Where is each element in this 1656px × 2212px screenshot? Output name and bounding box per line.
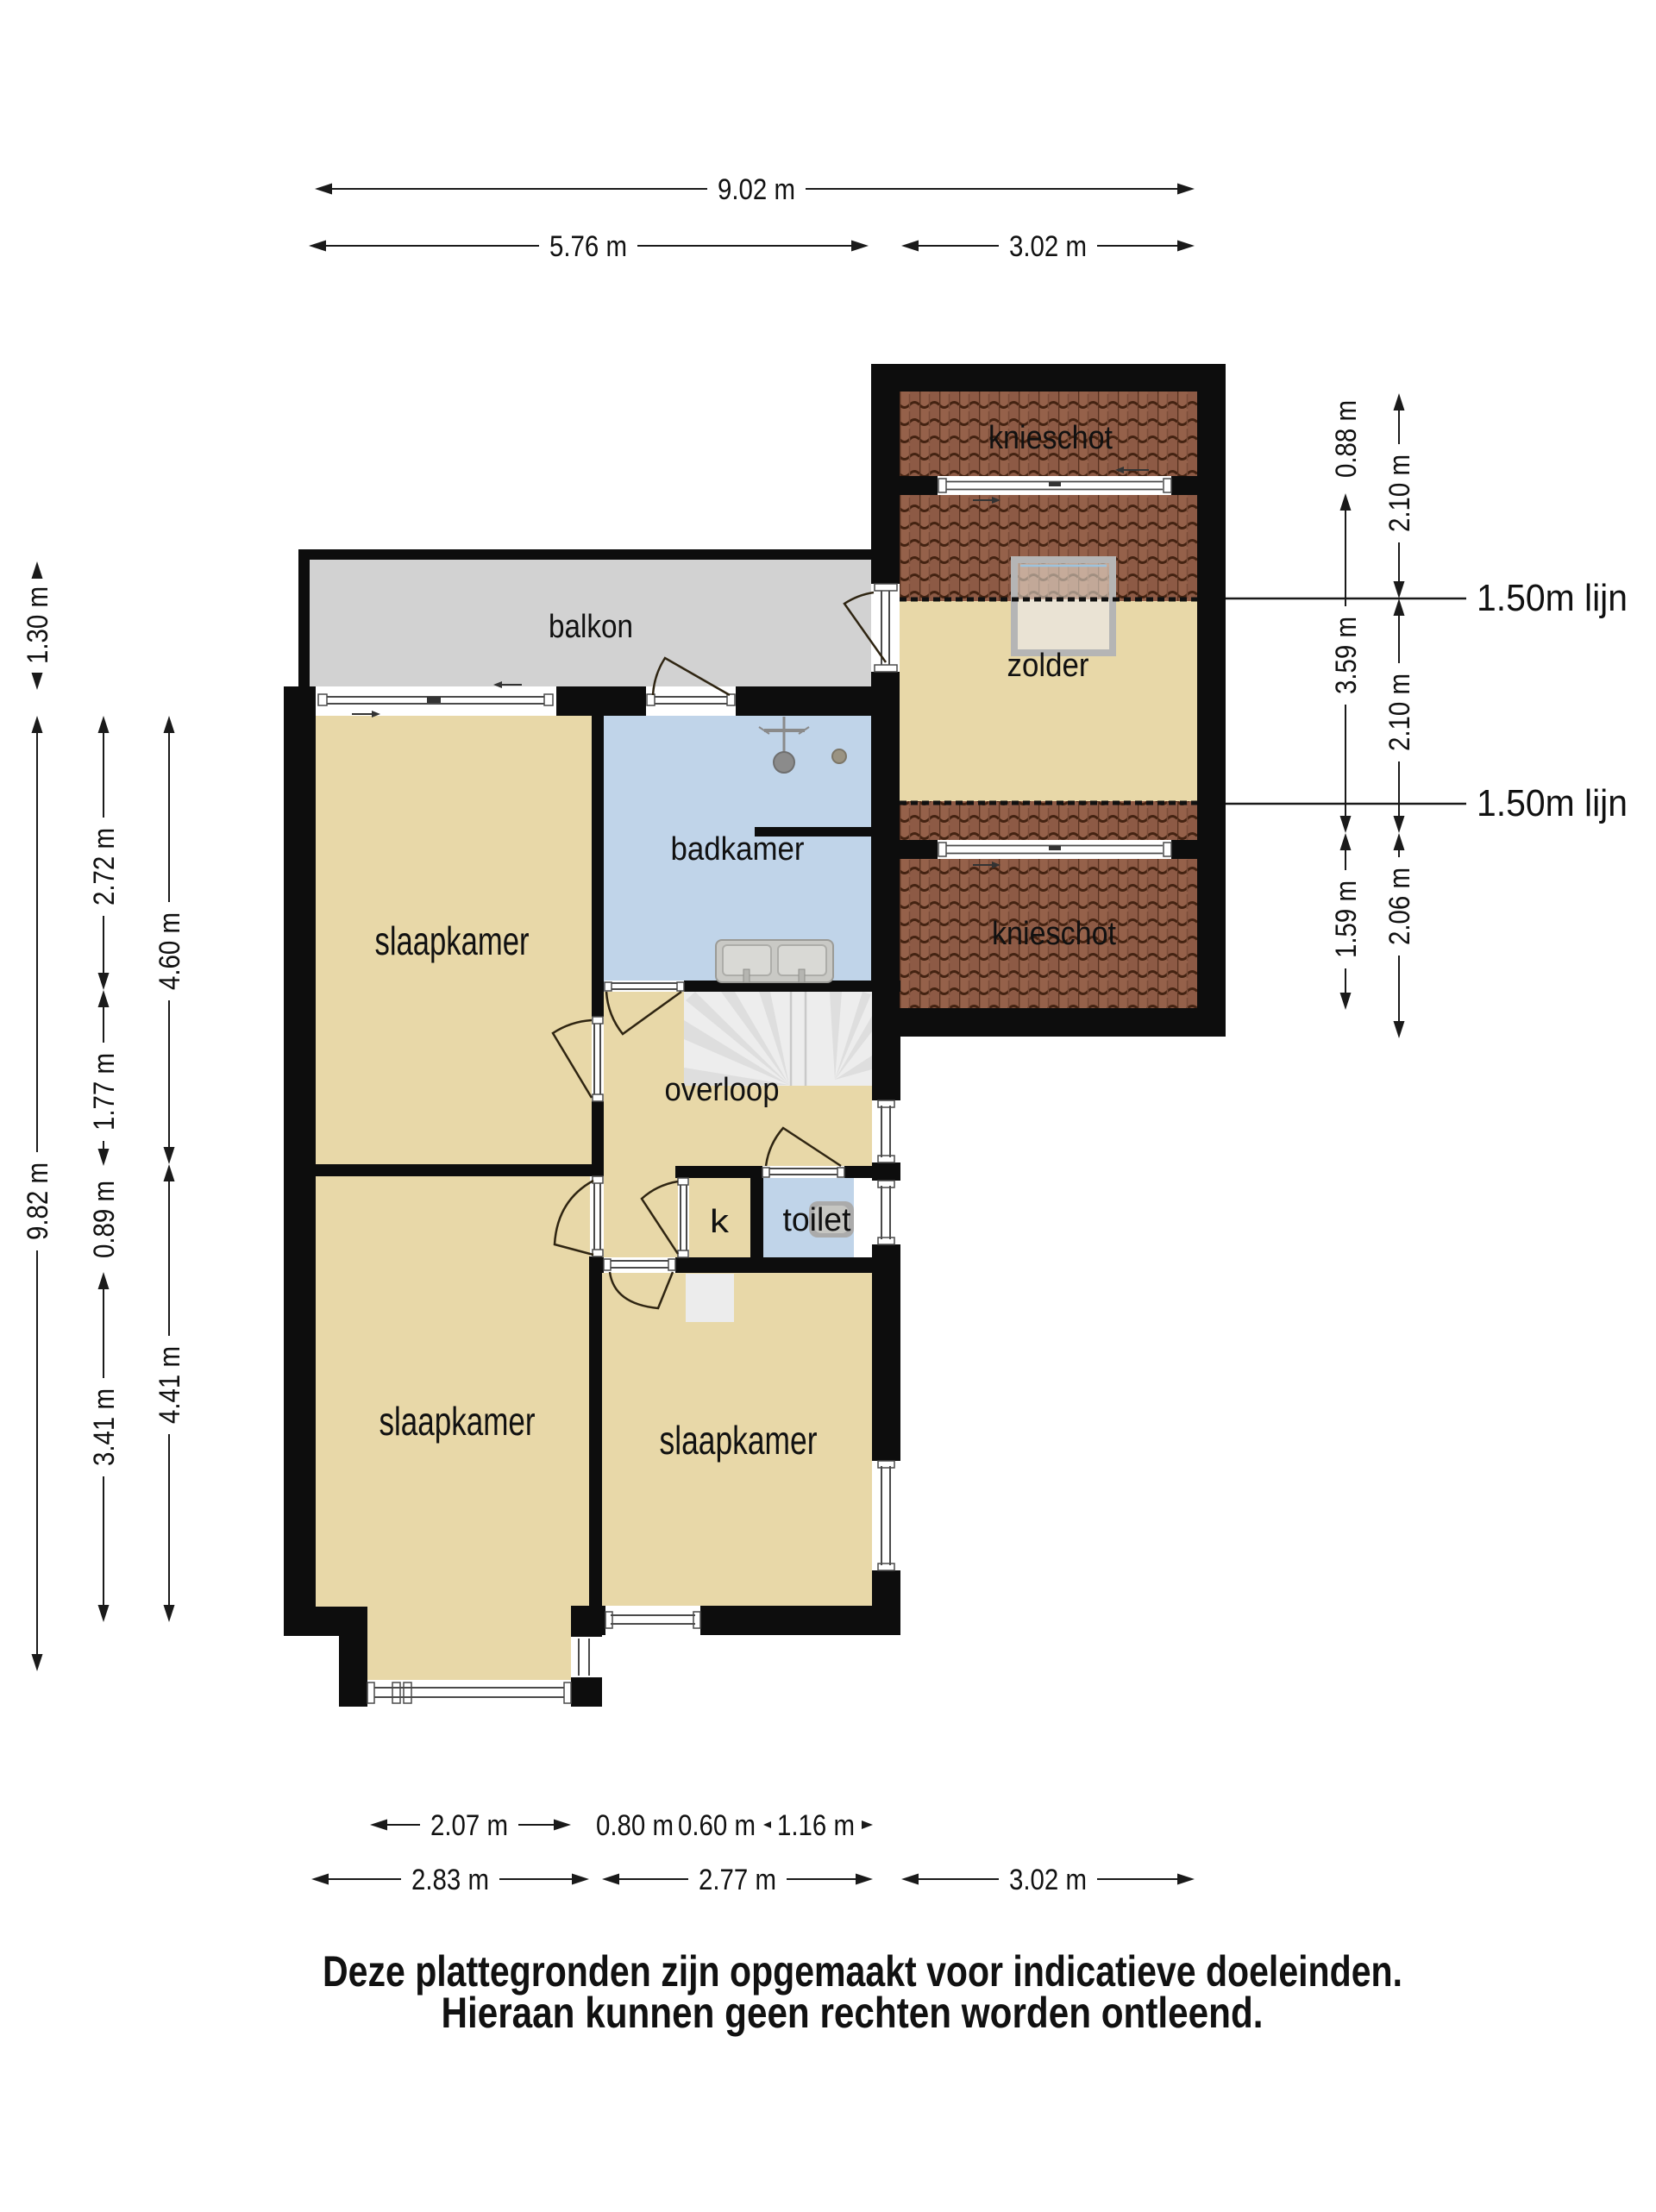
svg-text:1.59 m: 1.59 m [1330,880,1363,958]
svg-text:k: k [710,1204,730,1240]
svg-text:3.02 m: 3.02 m [1009,1864,1087,1896]
svg-text:toilet: toilet [783,1202,851,1238]
svg-text:2.77 m: 2.77 m [699,1864,776,1896]
svg-text:0.60 m: 0.60 m [678,1809,756,1842]
svg-text:2.10 m: 2.10 m [1383,454,1416,532]
svg-text:3.02 m: 3.02 m [1009,230,1087,263]
svg-text:slaapkamer: slaapkamer [660,1418,818,1463]
svg-text:2.06 m: 2.06 m [1383,868,1416,945]
svg-text:knieschot: knieschot [988,420,1113,456]
svg-text:3.59 m: 3.59 m [1330,617,1363,694]
svg-text:0.88 m: 0.88 m [1330,400,1363,478]
svg-text:4.41 m: 4.41 m [154,1346,186,1424]
svg-text:3.41 m: 3.41 m [88,1388,121,1466]
svg-text:1.16 m: 1.16 m [777,1809,855,1842]
svg-text:1.77 m: 1.77 m [88,1053,121,1131]
svg-text:overloop: overloop [665,1072,780,1108]
svg-text:0.80 m: 0.80 m [596,1809,674,1842]
svg-text:9.82 m: 9.82 m [22,1162,54,1240]
svg-text:0.89 m: 0.89 m [88,1181,121,1258]
svg-text:2.83 m: 2.83 m [411,1864,489,1896]
svg-text:2.10 m: 2.10 m [1383,674,1416,751]
svg-text:1.50m lijn: 1.50m lijn [1477,577,1628,619]
svg-text:balkon: balkon [549,609,633,645]
svg-text:knieschot: knieschot [992,916,1116,952]
svg-text:badkamer: badkamer [671,831,805,868]
svg-text:1.50m lijn: 1.50m lijn [1477,782,1628,824]
svg-text:slaapkamer: slaapkamer [375,918,530,963]
svg-text:2.07 m: 2.07 m [430,1809,508,1842]
svg-text:Hieraan kunnen geen rechten wo: Hieraan kunnen geen rechten worden ontle… [442,1989,1264,2037]
svg-text:9.02 m: 9.02 m [718,173,795,206]
svg-text:5.76 m: 5.76 m [549,230,627,263]
svg-text:4.60 m: 4.60 m [154,912,186,990]
svg-text:zolder: zolder [1007,648,1089,684]
svg-text:slaapkamer: slaapkamer [379,1399,536,1444]
svg-text:1.30 m: 1.30 m [22,586,54,664]
svg-text:2.72 m: 2.72 m [88,828,121,905]
